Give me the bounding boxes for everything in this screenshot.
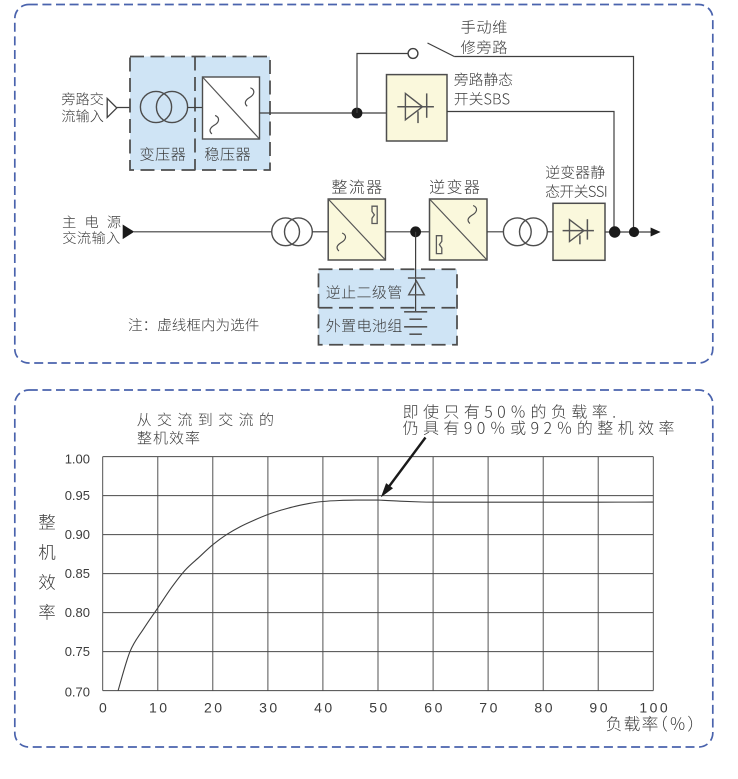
svg-text:70: 70 <box>479 699 500 715</box>
svg-text:0: 0 <box>99 699 109 715</box>
svg-text:0.85: 0.85 <box>65 566 90 581</box>
svg-text:60: 60 <box>424 699 445 715</box>
svg-text:30: 30 <box>259 699 280 715</box>
svg-text:0.70: 0.70 <box>65 685 90 700</box>
svg-text:100: 100 <box>639 699 670 715</box>
svg-text:0.80: 0.80 <box>65 605 90 620</box>
svg-text:80: 80 <box>534 699 555 715</box>
svg-text:0.95: 0.95 <box>65 488 90 503</box>
svg-text:0.75: 0.75 <box>65 644 90 659</box>
svg-text:50: 50 <box>369 699 390 715</box>
svg-text:40: 40 <box>314 699 335 715</box>
svg-text:1.00: 1.00 <box>65 452 90 467</box>
svg-text:0.90: 0.90 <box>65 527 90 542</box>
svg-text:10: 10 <box>149 699 170 715</box>
svg-text:90: 90 <box>589 699 610 715</box>
svg-text:20: 20 <box>204 699 225 715</box>
